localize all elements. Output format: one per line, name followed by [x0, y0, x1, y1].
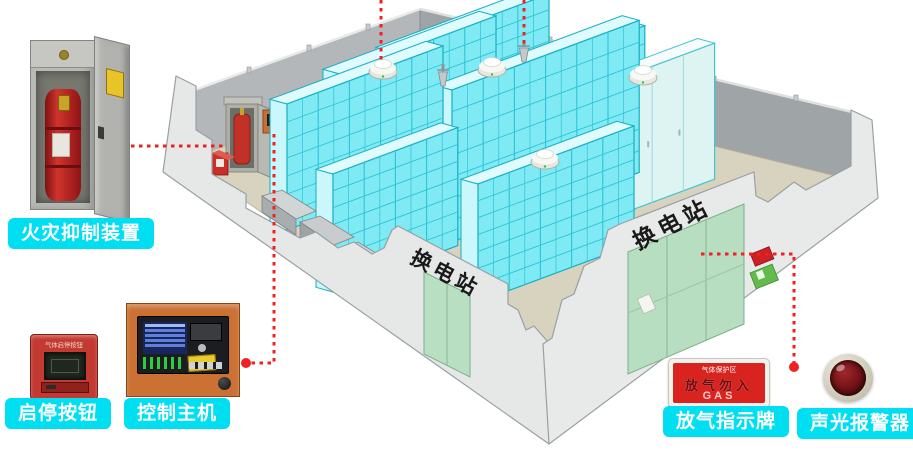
- control-host-photo: [126, 303, 240, 397]
- door-knob: [218, 377, 231, 390]
- button-switch-slot: [41, 382, 89, 393]
- button-switch: [46, 385, 56, 389]
- label-fire-suppression: 火灾抑制装置: [8, 218, 154, 249]
- cabinet-open-door: [94, 36, 130, 223]
- button-window-inner: [51, 359, 79, 373]
- button-window: [44, 352, 86, 380]
- label-control-host: 控制主机: [124, 398, 230, 429]
- callout-dot: [241, 358, 251, 368]
- screen-row: [145, 339, 185, 342]
- panel-keys: [189, 362, 223, 369]
- screen-row: [145, 329, 185, 332]
- button-device-title: 气体启停按钮: [34, 341, 93, 350]
- alarm-lens: [830, 360, 866, 396]
- cabinet-interior: [36, 71, 90, 203]
- label-gas-sign: 放气指示牌: [663, 406, 789, 437]
- warning-sticker: [106, 68, 124, 98]
- label-alarm: 声光报警器: [797, 408, 913, 439]
- door-latch: [98, 126, 104, 139]
- label-start-stop-button: 启停按钮: [5, 398, 111, 429]
- control-host-screen: [143, 322, 187, 354]
- screen-row: [145, 324, 185, 327]
- gas-sign-top-text: 气体保护区: [673, 365, 765, 375]
- gas-sign-face: 气体保护区 放气勿入 GAS: [673, 363, 765, 403]
- callout-dot: [789, 362, 799, 372]
- cylinder-label: [52, 133, 70, 157]
- control-host-panel: [137, 316, 229, 374]
- start-stop-button-photo: 气体启停按钮: [30, 334, 98, 400]
- panel-knob: [198, 344, 206, 352]
- cabinet-top-panel: [31, 41, 95, 68]
- sound-light-alarm-photo: [823, 354, 873, 402]
- fire-suppression-device-photo: [22, 34, 132, 214]
- gas-sign-gas-text: GAS: [673, 390, 765, 402]
- screen-row: [145, 344, 185, 347]
- cylinder-valve: [58, 95, 70, 111]
- cabinet-body: [30, 40, 96, 210]
- sub-display: [190, 323, 222, 341]
- inroom-suppression-cabinet: [224, 97, 272, 178]
- fire-suppression-system-diagram: 换电站 换电站: [0, 0, 913, 457]
- screen-row: [145, 334, 185, 337]
- gas-release-sign-photo: 气体保护区 放气勿入 GAS: [668, 358, 770, 408]
- keyhole: [59, 50, 69, 60]
- extinguisher-cylinder: [45, 89, 81, 201]
- status-leds: [143, 357, 183, 369]
